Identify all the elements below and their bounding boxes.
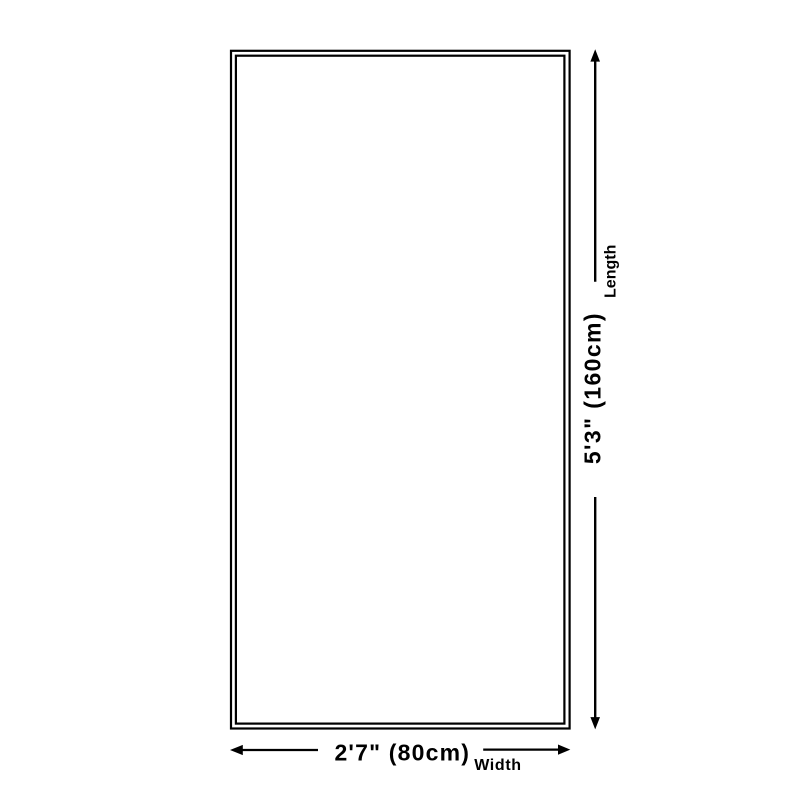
svg-text:2'7" (80cm): 2'7" (80cm) [334,739,470,765]
svg-text:Width: Width [474,757,522,774]
svg-text:Length: Length [603,245,620,298]
svg-text:5'3" (160cm): 5'3" (160cm) [580,312,606,464]
